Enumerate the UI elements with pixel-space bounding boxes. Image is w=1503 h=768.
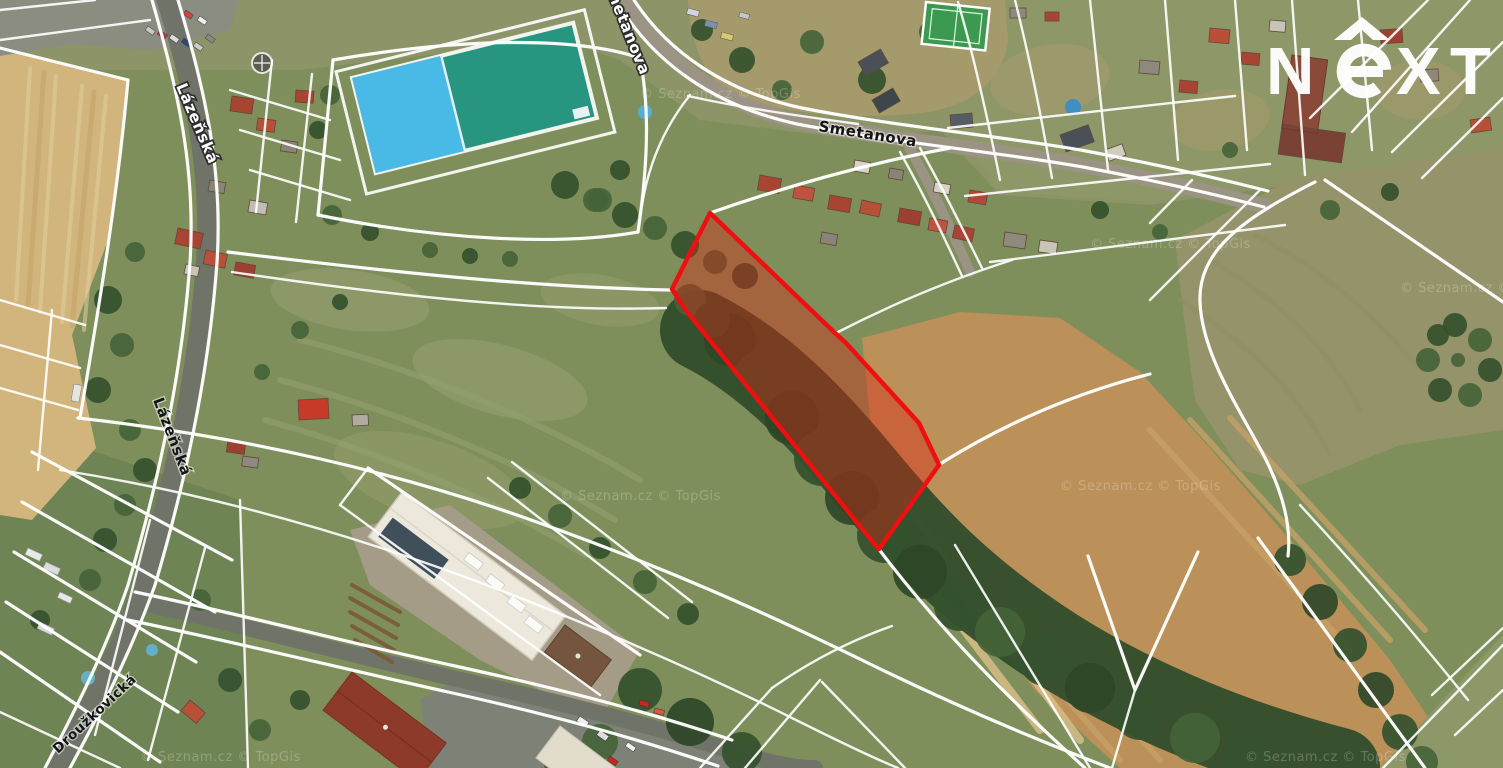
map-credit-watermark: © Seznam.cz © TopGis xyxy=(1400,281,1503,296)
tennis-court xyxy=(922,2,990,50)
map-credit-watermark: © Seznam.cz © TopGis xyxy=(640,87,801,102)
map-canvas[interactable]: Smetanova Lázeňská Smetanova Lázeňská Dr… xyxy=(0,0,1503,768)
garden-pool xyxy=(146,644,158,656)
map-credit-watermark: © Seznam.cz © TopGis xyxy=(560,489,721,504)
map-credit-watermark: © Seznam.cz © TopGis xyxy=(140,750,301,765)
logo-letter-n: N xyxy=(1266,34,1314,109)
round-building xyxy=(252,53,272,73)
logo-letter-x: X xyxy=(1396,34,1441,109)
logo-letter-t: T xyxy=(1450,34,1491,109)
map-credit-watermark: © Seznam.cz © TopGis xyxy=(1245,750,1406,765)
map-credit-watermark: © Seznam.cz © TopGis xyxy=(1060,479,1221,494)
map-credit-watermark: © Seznam.cz © TopGis xyxy=(1090,237,1251,252)
